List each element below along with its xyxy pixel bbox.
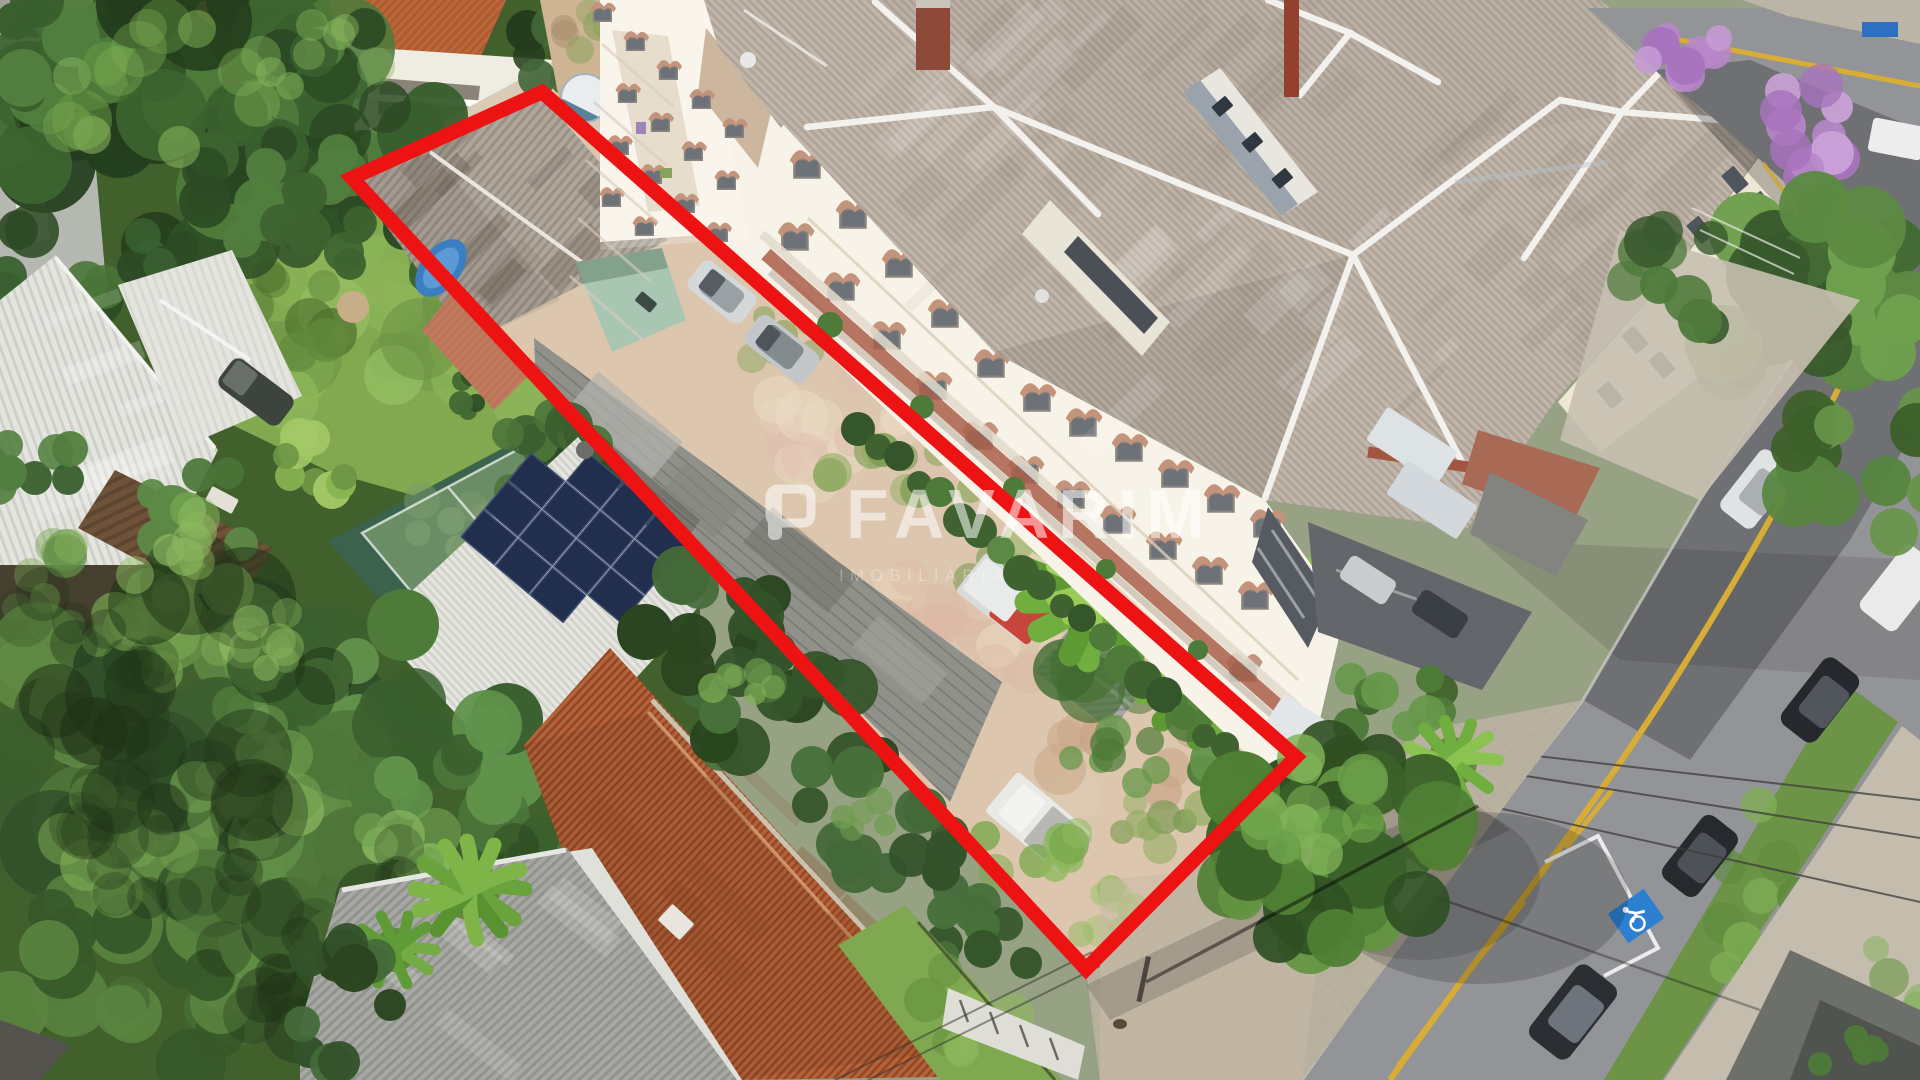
svg-text:FAVARIM: FAVARIM — [846, 475, 1214, 553]
svg-text:IMOBILIÁRIA: IMOBILIÁRIA — [839, 566, 1010, 585]
